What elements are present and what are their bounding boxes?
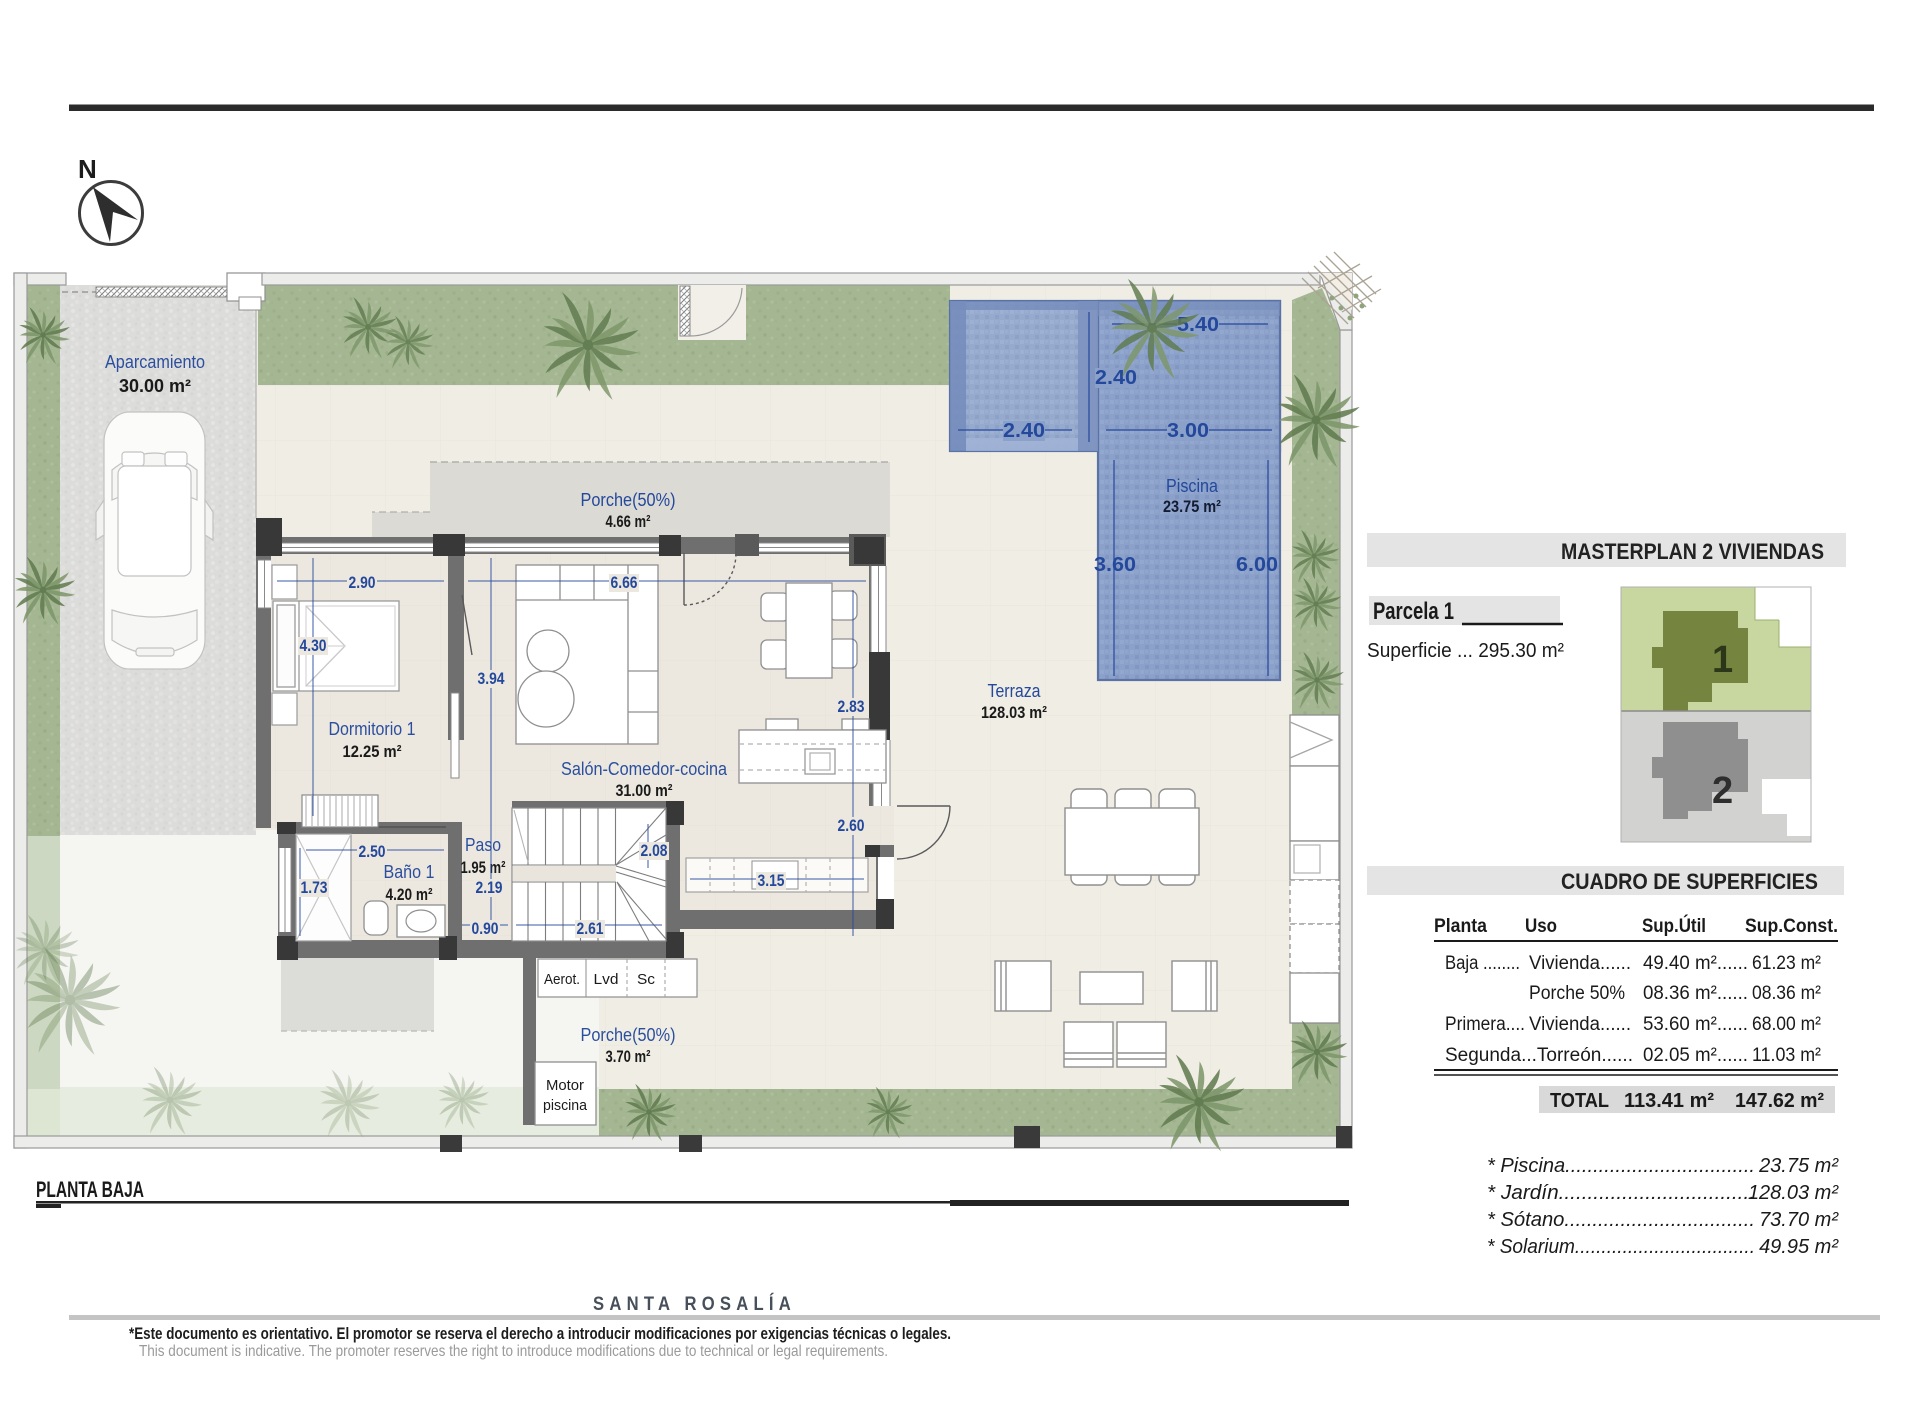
svg-text:1.95 m²: 1.95 m² (461, 858, 506, 877)
svg-text:Porche 50%: Porche 50% (1529, 983, 1625, 1004)
svg-text:4.66 m²: 4.66 m² (606, 512, 651, 531)
svg-text:2.08: 2.08 (641, 841, 668, 860)
svg-text:0.90: 0.90 (472, 919, 499, 938)
svg-text:31.00 m²: 31.00 m² (616, 781, 673, 800)
svg-text:128.03 m²: 128.03 m² (981, 703, 1047, 722)
svg-text:49.40 m²......: 49.40 m²...... (1643, 953, 1748, 974)
svg-text:Parcela 1: Parcela 1 (1373, 598, 1454, 625)
svg-text:PLANTA BAJA: PLANTA BAJA (36, 1177, 144, 1202)
svg-text:08.36 m²......: 08.36 m²...... (1643, 983, 1748, 1004)
svg-text:* Jardín......................: * Jardín................................… (1487, 1182, 1755, 1204)
svg-text:147.62 m²: 147.62 m² (1735, 1090, 1824, 1112)
svg-text:Sup.Útil: Sup.Útil (1642, 915, 1706, 937)
svg-text:4.30: 4.30 (300, 636, 327, 655)
svg-text:2.61: 2.61 (577, 919, 604, 938)
svg-text:12.25 m²: 12.25 m² (343, 742, 402, 761)
svg-text:08.36 m²: 08.36 m² (1752, 983, 1821, 1004)
svg-text:2.90: 2.90 (349, 573, 376, 592)
svg-text:Piscina: Piscina (1166, 476, 1219, 496)
svg-text:Sup.Const.: Sup.Const. (1745, 916, 1838, 937)
svg-text:128.03 m²: 128.03 m² (1748, 1182, 1839, 1204)
svg-text:Superficie ... 295.30 m²: Superficie ... 295.30 m² (1367, 640, 1564, 662)
svg-text:Aerot.: Aerot. (544, 971, 580, 988)
svg-text:1: 1 (1712, 639, 1733, 681)
svg-text:11.03 m²: 11.03 m² (1752, 1045, 1821, 1066)
svg-text:2.19: 2.19 (476, 878, 503, 897)
svg-text:2.83: 2.83 (838, 697, 865, 716)
svg-text:6.66: 6.66 (611, 573, 638, 592)
svg-text:61.23 m²: 61.23 m² (1752, 953, 1821, 974)
svg-text:113.41 m²: 113.41 m² (1624, 1090, 1714, 1112)
svg-text:This document is indicative. T: This document is indicative. The promote… (139, 1343, 888, 1360)
svg-text:Lvd: Lvd (594, 971, 619, 988)
svg-text:* Solarium....................: * Solarium..............................… (1487, 1236, 1755, 1258)
svg-text:Salón-Comedor-cocina: Salón-Comedor-cocina (561, 759, 728, 779)
svg-text:30.00 m²: 30.00 m² (119, 376, 191, 396)
svg-text:Baño 1: Baño 1 (384, 862, 435, 882)
svg-text:3.94: 3.94 (478, 669, 505, 688)
svg-text:Uso: Uso (1525, 916, 1557, 937)
svg-text:2.40: 2.40 (1003, 420, 1045, 442)
svg-text:2.50: 2.50 (359, 842, 386, 861)
svg-text:Primera....: Primera.... (1445, 1014, 1525, 1035)
svg-text:Planta: Planta (1434, 916, 1487, 937)
svg-text:*Este documento es orientativo: *Este documento es orientativo. El promo… (129, 1324, 951, 1343)
svg-text:3.60: 3.60 (1094, 554, 1136, 576)
svg-text:2: 2 (1712, 770, 1733, 812)
svg-text:piscina: piscina (543, 1097, 588, 1114)
svg-text:MASTERPLAN 2 VIVIENDAS: MASTERPLAN 2 VIVIENDAS (1561, 539, 1824, 564)
svg-text:CUADRO DE SUPERFICIES: CUADRO DE SUPERFICIES (1561, 869, 1818, 894)
svg-text:Aparcamiento: Aparcamiento (105, 352, 205, 372)
svg-text:TOTAL: TOTAL (1550, 1090, 1609, 1112)
svg-text:Paso: Paso (465, 835, 501, 855)
svg-text:02.05 m²......: 02.05 m²...... (1643, 1045, 1748, 1066)
svg-text:N: N (78, 154, 97, 184)
svg-text:2.40: 2.40 (1095, 367, 1137, 389)
svg-text:23.75 m²: 23.75 m² (1758, 1155, 1839, 1177)
svg-text:49.95 m²: 49.95 m² (1759, 1236, 1839, 1258)
svg-text:53.60 m²......: 53.60 m²...... (1643, 1014, 1748, 1035)
svg-text:3.15: 3.15 (758, 871, 785, 890)
svg-text:2.60: 2.60 (838, 816, 865, 835)
svg-text:3.70 m²: 3.70 m² (606, 1047, 651, 1066)
svg-text:73.70 m²: 73.70 m² (1759, 1209, 1839, 1231)
svg-text:Terraza: Terraza (988, 681, 1042, 701)
svg-text:Porche(50%): Porche(50%) (581, 1025, 676, 1045)
svg-text:4.20 m²: 4.20 m² (386, 885, 433, 904)
svg-text:Sc: Sc (637, 971, 656, 988)
svg-text:3.00: 3.00 (1167, 420, 1209, 442)
svg-text:Baja ........: Baja ........ (1445, 953, 1520, 974)
svg-text:Vivienda......: Vivienda...... (1529, 1014, 1631, 1035)
svg-text:6.00: 6.00 (1236, 554, 1278, 576)
svg-text:Vivienda......: Vivienda...... (1529, 953, 1631, 974)
svg-text:* Piscina.....................: * Piscina...............................… (1487, 1155, 1755, 1177)
svg-text:23.75 m²: 23.75 m² (1163, 497, 1221, 516)
svg-text:SANTA ROSALÍA: SANTA ROSALÍA (593, 1293, 796, 1315)
svg-text:68.00 m²: 68.00 m² (1752, 1014, 1821, 1035)
svg-text:* Sótano......................: * Sótano................................… (1487, 1209, 1755, 1231)
svg-text:Dormitorio 1: Dormitorio 1 (329, 719, 416, 739)
svg-text:Segunda...Torreón......: Segunda...Torreón...... (1445, 1045, 1633, 1066)
svg-text:Motor: Motor (546, 1077, 584, 1094)
svg-text:1.73: 1.73 (301, 878, 328, 897)
svg-text:Porche(50%): Porche(50%) (581, 490, 676, 510)
